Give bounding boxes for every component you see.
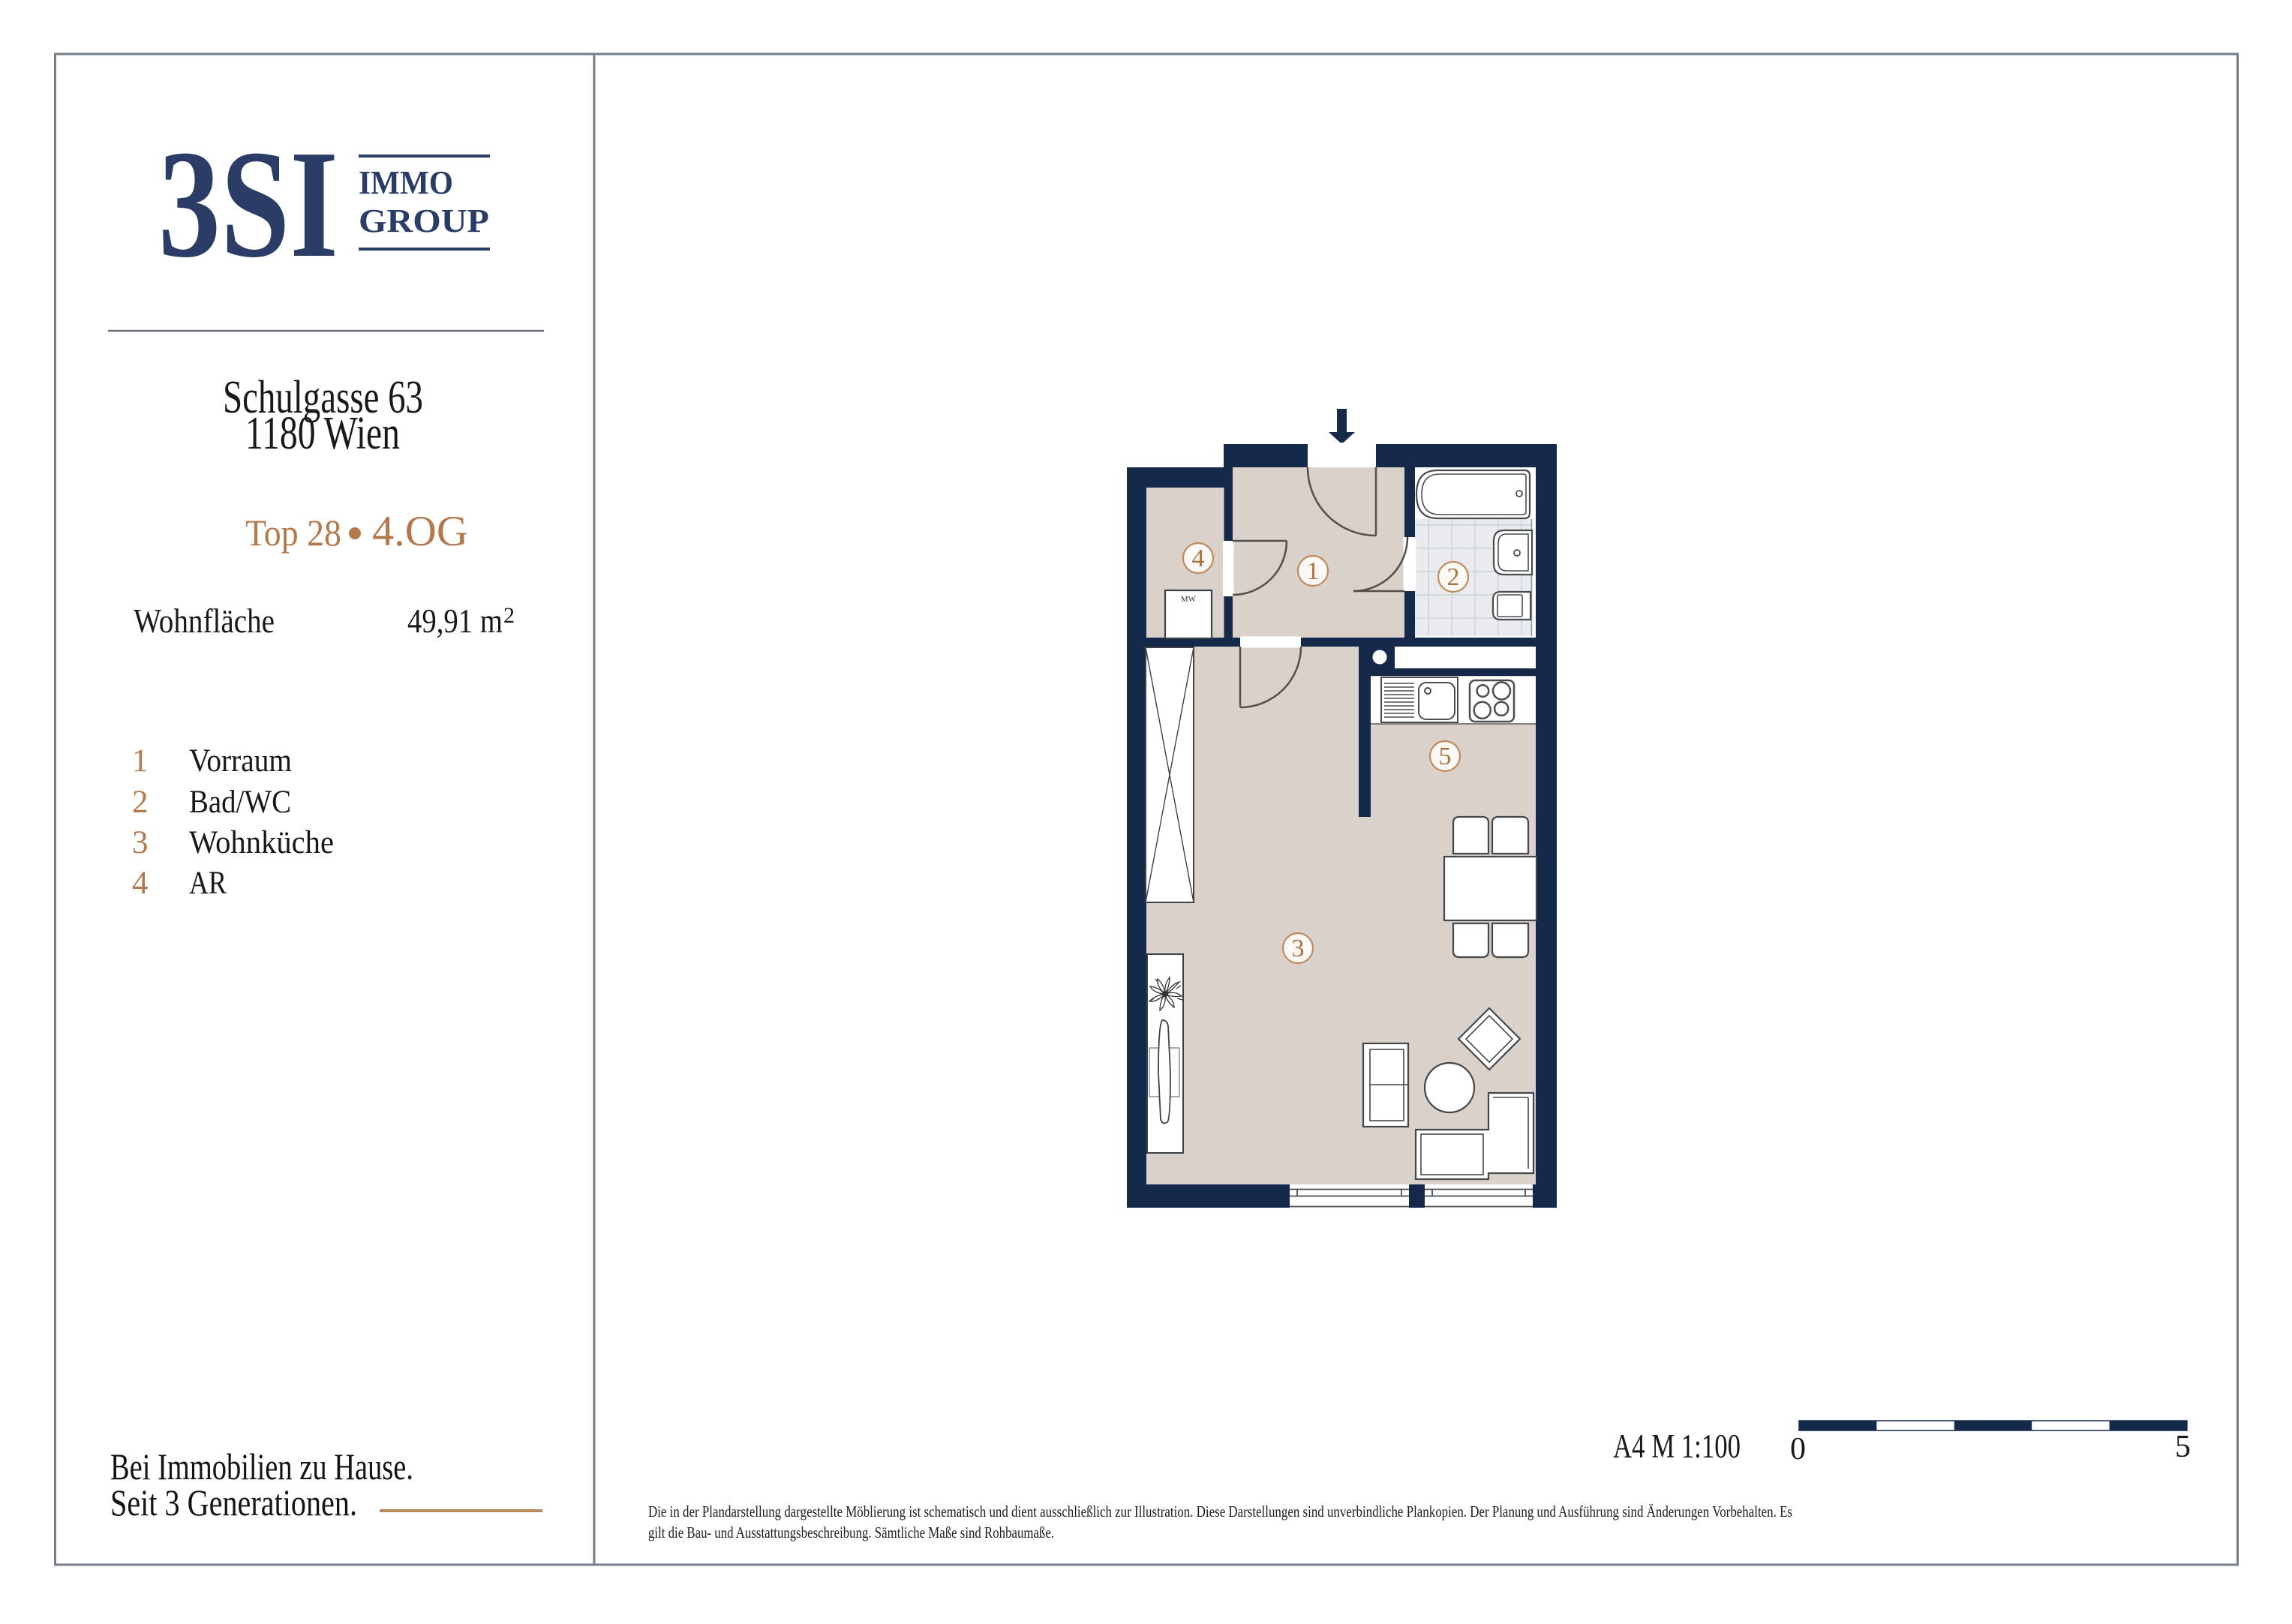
svg-text:IMMO: IMMO xyxy=(359,164,453,201)
svg-text:3SI: 3SI xyxy=(158,118,338,290)
svg-text:AR: AR xyxy=(189,866,227,901)
svg-text:Seit 3 Generationen.: Seit 3 Generationen. xyxy=(110,1481,357,1523)
svg-text:A4 M 1:100: A4 M 1:100 xyxy=(1613,1427,1741,1465)
svg-text:Wohnküche: Wohnküche xyxy=(189,825,334,860)
svg-text:0: 0 xyxy=(1790,1432,1806,1466)
svg-text:4.OG: 4.OG xyxy=(372,508,468,555)
svg-text:Vorraum: Vorraum xyxy=(189,743,292,779)
svg-text:2: 2 xyxy=(503,603,515,628)
svg-text:3: 3 xyxy=(1292,935,1305,962)
svg-text:49,91 m: 49,91 m xyxy=(407,602,503,640)
svg-text:4: 4 xyxy=(1192,545,1205,572)
svg-text:3: 3 xyxy=(132,825,149,860)
svg-text:1: 1 xyxy=(1307,557,1320,585)
svg-text:1180 Wien: 1180 Wien xyxy=(245,408,400,459)
svg-text:MW: MW xyxy=(1181,595,1197,604)
svg-text:4: 4 xyxy=(132,866,149,901)
svg-text:gilt die Bau- und Ausstattungs: gilt die Bau- und Ausstattungsbeschreibu… xyxy=(648,1523,1054,1541)
svg-text:5: 5 xyxy=(2175,1430,2191,1464)
svg-text:2: 2 xyxy=(1447,563,1460,591)
svg-text:Wohnfläche: Wohnfläche xyxy=(134,602,275,640)
svg-text:Die in der Plandarstellung dar: Die in der Plandarstellung dargestellte … xyxy=(648,1502,1792,1520)
svg-text:Bad/WC: Bad/WC xyxy=(189,785,291,820)
svg-text:Top 28: Top 28 xyxy=(245,512,341,554)
svg-text:GROUP: GROUP xyxy=(359,203,489,239)
svg-text:1: 1 xyxy=(132,743,149,779)
svg-text:2: 2 xyxy=(132,785,149,820)
svg-text:5: 5 xyxy=(1439,743,1452,770)
